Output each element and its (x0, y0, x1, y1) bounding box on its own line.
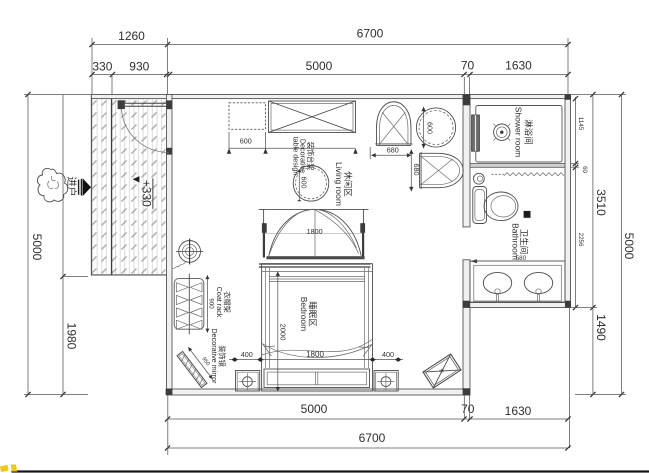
svg-text:60: 60 (581, 166, 588, 173)
svg-text:1800: 1800 (307, 227, 323, 236)
svg-text:2256: 2256 (577, 233, 584, 247)
svg-text:1980: 1980 (64, 323, 78, 350)
svg-text:1145: 1145 (577, 117, 584, 131)
svg-text:400: 400 (241, 350, 253, 359)
svg-text:+330: +330 (140, 180, 154, 207)
svg-text:5000: 5000 (30, 234, 44, 261)
svg-text:进户: 进户 (65, 177, 78, 197)
svg-text:70: 70 (461, 402, 475, 416)
svg-text:600: 600 (426, 122, 435, 134)
svg-text:5000: 5000 (306, 59, 333, 73)
svg-text:1630: 1630 (505, 404, 532, 418)
svg-text:2000: 2000 (279, 324, 288, 341)
svg-text:3510: 3510 (594, 189, 608, 216)
svg-text:睡眠区Bedroom: 睡眠区Bedroom (299, 297, 318, 332)
svg-text:70: 70 (461, 59, 475, 73)
svg-text:1630: 1630 (505, 59, 532, 73)
svg-text:1800: 1800 (306, 350, 324, 359)
svg-text:680: 680 (387, 146, 399, 155)
svg-text:600: 600 (240, 137, 252, 146)
svg-text:400: 400 (382, 350, 394, 359)
svg-text:6700: 6700 (357, 27, 384, 41)
svg-text:600: 600 (300, 177, 309, 189)
svg-text:900: 900 (208, 298, 215, 309)
svg-text:5000: 5000 (622, 233, 636, 260)
svg-text:6700: 6700 (359, 431, 386, 445)
svg-text:930: 930 (129, 59, 149, 73)
svg-text:680: 680 (412, 164, 421, 176)
svg-text:1490: 1490 (594, 314, 608, 341)
svg-text:330: 330 (92, 59, 112, 73)
svg-text:1260: 1260 (118, 29, 145, 43)
svg-text:5000: 5000 (301, 402, 328, 416)
